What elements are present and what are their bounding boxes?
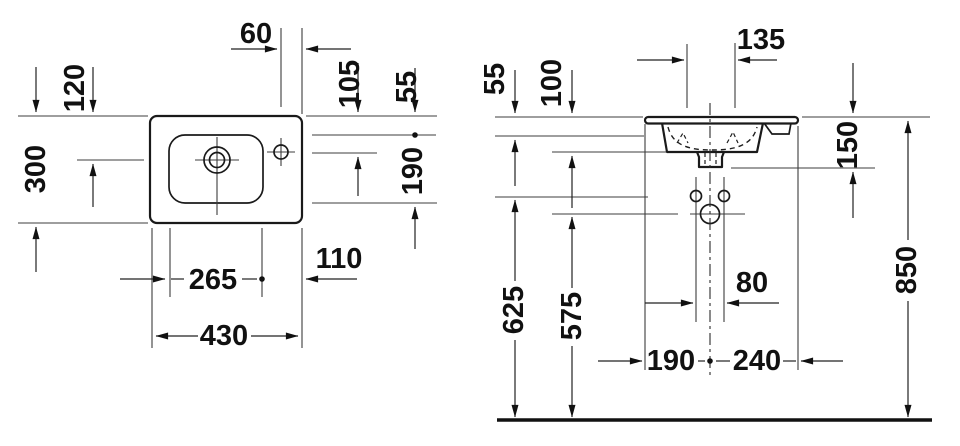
dim-fixing-height-label: 625 [498, 286, 530, 334]
dim-rim-to-deck-label: 55 [479, 63, 511, 95]
dim-rim-to-drain-label: 150 [832, 121, 864, 169]
dim-center-to-right-label: 240 [733, 345, 781, 377]
dim-total-width-label: 430 [200, 320, 248, 352]
dim-basin-height-label: 100 [536, 59, 568, 107]
plan-view: 60 120 300 105 55 190 265 110 430 [18, 18, 437, 352]
front-view: 135 55 100 150 625 575 850 80 190 240 [479, 24, 932, 420]
dim-bowl-bottom-width-label: 135 [737, 24, 785, 56]
dim-tap-offset-label: 60 [240, 18, 272, 50]
dim-back-to-bowl-label: 55 [391, 71, 423, 103]
washbasin-dimension-drawing: 60 120 300 105 55 190 265 110 430 [0, 0, 960, 446]
dim-fixing-spacing-label: 80 [736, 267, 768, 299]
front-dimension-arrows [515, 60, 908, 417]
dim-back-to-tap-label: 105 [334, 60, 366, 108]
tap-deck-section [764, 123, 791, 134]
dim-outlet-height-label: 575 [556, 292, 588, 340]
dim-total-depth-label: 300 [20, 145, 52, 193]
dim-rim-height-label: 850 [891, 246, 923, 294]
basin-body-section [662, 123, 763, 152]
dim-bowl-width-label: 265 [189, 264, 237, 296]
rim-section [645, 117, 798, 124]
technical-drawing-canvas: 60 120 300 105 55 190 265 110 430 [0, 0, 960, 446]
dim-bowl-depth-label: 190 [397, 147, 429, 195]
dim-left-to-center-label: 190 [647, 345, 695, 377]
dim-bowl-to-edge-label: 110 [316, 243, 363, 275]
dim-back-to-drain-label: 120 [59, 64, 91, 112]
